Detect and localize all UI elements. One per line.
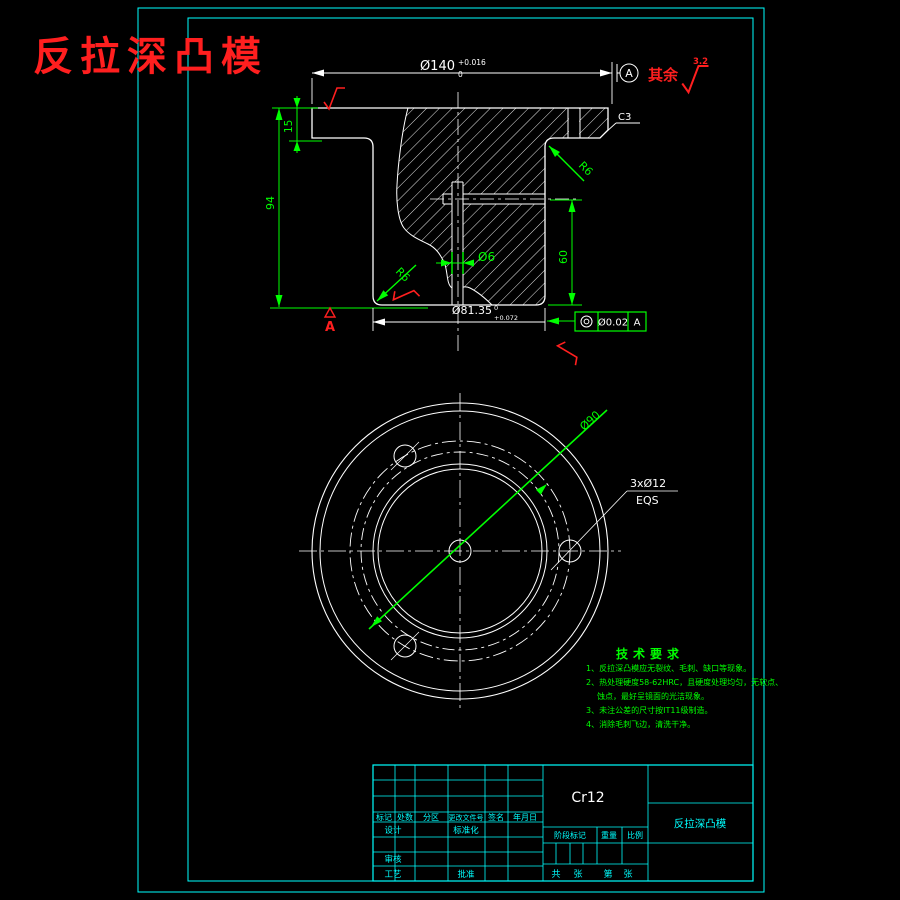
tb-weight: 重量 [601, 830, 617, 840]
rest-value: 3.2 [693, 57, 708, 67]
tech-requirements: 技术要求 1、反拉深凸模应无裂纹、毛刺、缺口等现象。 2、热处理硬度58-62H… [586, 646, 783, 729]
flange-groove [569, 107, 579, 139]
gdt-datum: A [634, 318, 641, 329]
holes-note: EQS [636, 494, 659, 507]
cad-screenshot: 反拉深凸模 [0, 0, 900, 900]
tb-standardize: 标准化 [453, 825, 479, 836]
roughness-icon [324, 88, 345, 109]
tb-scale: 比例 [627, 830, 643, 840]
tb-process: 工艺 [384, 870, 401, 880]
chamfer-callout: C3 [605, 112, 640, 133]
tb-header-zone: 分区 [423, 813, 439, 822]
tb-audit: 审核 [384, 854, 402, 865]
holes-label: 3xØ12 [630, 477, 666, 490]
cad-canvas: 反拉深凸模 [0, 0, 900, 900]
title-block: 标记 处数 分区 更改文件号 签名 年月日 设计 标准化 审核 工艺 批准 Cr… [373, 765, 753, 881]
chamfer-label: C3 [618, 112, 631, 123]
datum-circle-label: A [625, 67, 633, 80]
dim-15-value: 15 [283, 120, 295, 133]
tb-sheet-zhang2: 张 [623, 869, 632, 880]
roughness-icon [555, 341, 579, 365]
dim-60-value: 60 [557, 250, 570, 264]
tb-stage: 阶段标记 [554, 830, 586, 840]
stage-table-grid [543, 765, 648, 881]
tb-sheet-total: 共 [551, 869, 560, 880]
tb-sheet-no: 第 [603, 868, 612, 880]
datum-circle: A [617, 64, 638, 82]
tech-line: 蚀点，最好呈镜面的光洁现象。 [597, 691, 709, 701]
dim-60: 60 [557, 200, 576, 305]
section-view: Ø140 +0.016 0 A 其余 3.2 C3 [264, 57, 709, 365]
tb-header-date: 年月日 [513, 812, 537, 822]
dim-d140-value: Ø140 [420, 59, 455, 74]
dim-d8135-sup: 0 [494, 304, 498, 312]
datum-flag-label: A [325, 320, 335, 335]
rest-label: 其余 [648, 66, 679, 84]
dim-d8135-value: Ø81.35 [452, 304, 492, 317]
dim-d140: Ø140 +0.016 0 [312, 58, 612, 104]
gdt-tolerance: Ø0.02 [598, 317, 628, 329]
dim-15: 15 [283, 96, 301, 153]
tech-line: 1、反拉深凸模应无裂纹、毛刺、缺口等现象。 [586, 663, 751, 673]
dim-94: 94 [264, 108, 283, 307]
tech-title: 技术要求 [616, 646, 684, 661]
tb-sheet-zhang: 张 [573, 869, 582, 880]
tb-part-name: 反拉深凸模 [674, 817, 727, 830]
drawing-title: 反拉深凸模 [33, 33, 268, 80]
tb-header-count: 处数 [397, 812, 413, 822]
vertical-hole [452, 182, 463, 305]
dim-d140-sup: +0.016 [458, 58, 486, 67]
dim-d90-value: Ø90 [577, 408, 603, 433]
dim-d8135-sub: +0.072 [494, 314, 518, 322]
roughness-icon [682, 66, 708, 92]
dim-d6-value: Ø6 [478, 250, 495, 264]
tb-header-sign: 签名 [488, 812, 504, 822]
tb-design: 设计 [384, 825, 402, 836]
gdt-frame: Ø0.02 A [547, 312, 646, 331]
tech-line: 2、热处理硬度58-62HRC，且硬度处理均匀，无软点、 [586, 677, 783, 687]
concentricity-icon [584, 319, 589, 324]
radius-r6-lower-label: R6 [393, 265, 413, 285]
tb-approve: 批准 [457, 869, 475, 880]
radius-r6-upper: R6 [549, 146, 595, 181]
dim-d90: Ø90 [369, 408, 607, 629]
tech-line: 3、未注公差的尺寸按IT11级制造。 [586, 705, 713, 715]
radius-r6-lower: R6 [377, 265, 420, 311]
tb-material: Cr12 [571, 790, 604, 806]
concentricity-icon [581, 316, 592, 327]
tb-header-docno: 更改文件号 [449, 813, 484, 822]
tech-line: 4、消除毛刺飞边，清洗干净。 [586, 719, 695, 729]
tb-header-mark: 标记 [376, 812, 392, 822]
dim-d140-sub: 0 [458, 70, 463, 79]
dim-94-value: 94 [264, 196, 277, 210]
general-roughness: 其余 3.2 [648, 57, 709, 92]
datum-flag: A [325, 308, 335, 335]
